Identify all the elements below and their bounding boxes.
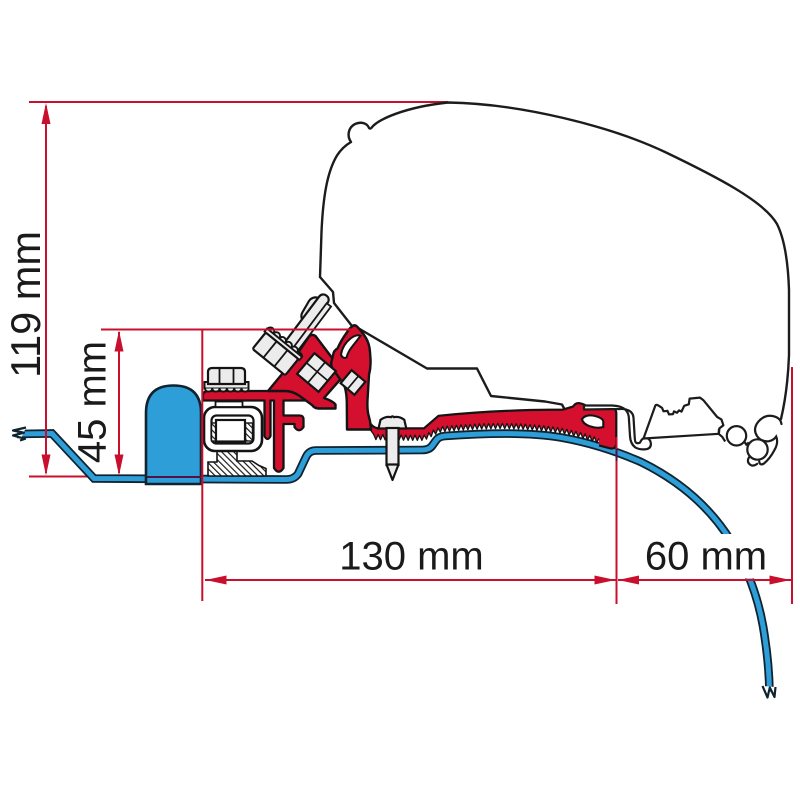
svg-text:45 mm: 45 mm — [71, 341, 115, 463]
svg-text:60 mm: 60 mm — [645, 535, 767, 579]
svg-text:130 mm: 130 mm — [339, 535, 484, 579]
svg-text:119 mm: 119 mm — [2, 231, 49, 378]
